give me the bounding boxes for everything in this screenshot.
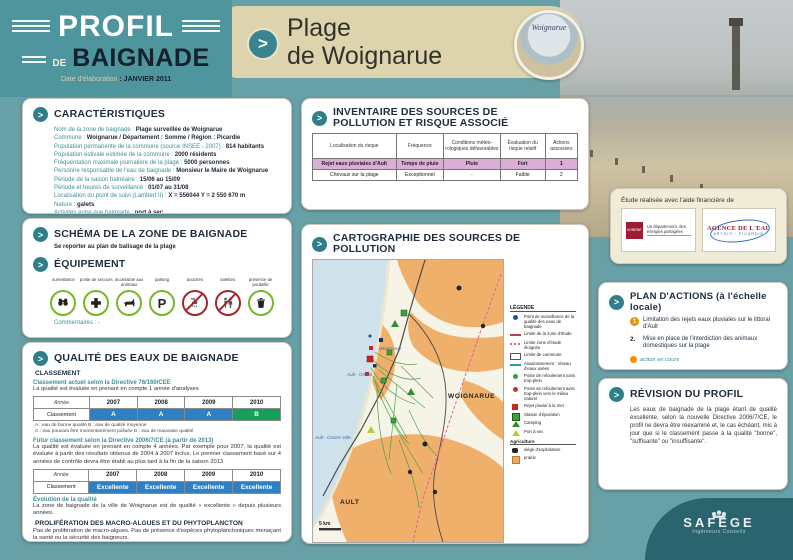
evolution-text: La zone de baignade de la ville de Woign… xyxy=(33,503,281,517)
legend-title: LÉGENDE xyxy=(510,305,576,312)
table-value-row: Classement A A A B xyxy=(34,409,281,421)
proliferation-heading: PROLIFÉRATION DES MACRO-ALGUES ET DU PHY… xyxy=(33,520,281,527)
classement-heading: CLASSEMENT xyxy=(33,370,281,377)
caracteristique-line: Commune : Woignarue / Département : Somm… xyxy=(33,134,281,142)
legend-symbol xyxy=(510,332,521,338)
equipement-toilettes: toilettes xyxy=(211,278,244,316)
actions-list: 1 Limitation des rejets eaux pluviales s… xyxy=(609,317,777,350)
caracteristique-line: Population permanente de la commune (sou… xyxy=(33,143,281,151)
in-progress-dot-icon xyxy=(630,356,637,363)
legend-symbol xyxy=(510,413,521,419)
legend-symbol xyxy=(510,315,521,321)
legend-item: Point de surveillance de la qualité des … xyxy=(510,315,576,330)
caracteristique-line: Population estivale estimée de la commun… xyxy=(33,151,281,159)
somme-logo-icon: somme xyxy=(626,222,643,239)
legend-symbol xyxy=(510,374,521,380)
agence-eau-swoosh-icon xyxy=(709,216,771,245)
legend-symbol xyxy=(510,362,521,368)
legend-symbol xyxy=(510,353,521,359)
trash-bin-icon xyxy=(248,290,274,316)
caracteristique-line: Fréquentation maximale journalière de la… xyxy=(33,159,281,167)
equipement-surveillance: surveillance xyxy=(47,278,80,316)
legend-symbol xyxy=(510,341,521,347)
table-value-row: Classement Excellente Excellente Excelle… xyxy=(34,481,281,493)
equipement-parking: parking P xyxy=(146,278,179,316)
legend-item: siège d'exploitation xyxy=(510,448,576,454)
map-image: Woignarue Ault - Onival WOIGNARUE Ault -… xyxy=(312,259,504,543)
table-header-row: Année 2007 2008 2009 2010 xyxy=(34,397,281,409)
chevron-right-icon: > xyxy=(247,28,279,60)
classement-note: C : eau pouvant être momentanément pollu… xyxy=(33,429,281,435)
legend-item: Station d'épuration xyxy=(510,413,576,419)
legend-item: prairie xyxy=(510,456,576,462)
first-aid-cross-icon xyxy=(83,290,109,316)
parking-icon: P xyxy=(149,290,175,316)
commune-badge: Woignarue xyxy=(514,10,584,80)
legend-symbol xyxy=(510,430,521,436)
map-label-woignarue-town: Woignarue xyxy=(379,346,402,351)
groyne-post xyxy=(615,158,618,165)
caracteristique-line: Activités autre que baignade : port à se… xyxy=(33,209,281,214)
future-directive-text: La qualité est évaluée en prenant en com… xyxy=(33,444,281,466)
funding-card: Étude réalisée avec l'aide financière de… xyxy=(610,188,787,264)
equipement-douches: douches xyxy=(178,278,211,316)
caracteristique-line: Localisation du point de suivi (Lambert … xyxy=(33,192,281,200)
decorative-lines xyxy=(182,20,220,35)
chevron-right-icon: > xyxy=(33,227,48,242)
page-title: Plage de Woignarue xyxy=(287,14,442,70)
cartographie-card: > CARTOGRAPHIE DES SOURCES DE POLLUTION xyxy=(301,224,589,544)
legend-list: Point de surveillance de la qualité des … xyxy=(510,315,576,436)
legend-agri-list: siège d'exploitation prairie xyxy=(510,448,576,463)
legend-symbol xyxy=(510,387,521,393)
table-header-row: Année 2007 2008 2009 2010 xyxy=(34,469,281,481)
equipement-comments: Commentaires : - xyxy=(33,320,281,326)
classement-table-current: Année 2007 2008 2009 2010 Classement A A… xyxy=(33,396,281,421)
revision-card: > RÉVISION DU PROFIL Les eaux de baignad… xyxy=(598,378,788,490)
legend-item: Poste de refoulement avec trop-plein ver… xyxy=(510,387,576,402)
legend-item: Limite de la zone d'étude xyxy=(510,332,576,338)
equipement-poubelle: présence de poubelle xyxy=(244,278,277,316)
schema-note: Se reporter au plan de balisage de la pl… xyxy=(33,244,281,250)
table-row: Chevaux sur la plage Exceptionnel - Faib… xyxy=(313,170,578,181)
section-title: CARACTÉRISTIQUES xyxy=(54,109,165,120)
chevron-right-icon: > xyxy=(33,351,48,366)
dog-icon xyxy=(116,290,142,316)
toilets-icon xyxy=(215,290,241,316)
table-header-row: Localisation du risque Fréquence Conditi… xyxy=(313,134,578,159)
plan-actions-card: > PLAN D'ACTIONS (à l'échelle locale) 1 … xyxy=(598,282,788,370)
section-title: INVENTAIRE DES SOURCES DE POLLUTION ET R… xyxy=(333,107,563,129)
chevron-right-icon: > xyxy=(609,295,624,310)
caracteristique-line: Personne responsable de l'eau de baignad… xyxy=(33,167,281,175)
legend-item: Poste de refoulement sans trop-plein xyxy=(510,374,576,384)
qualite-card: > QUALITÉ DES EAUX DE BAIGNADE CLASSEMEN… xyxy=(22,342,292,542)
safege-logo: SAFEGE Ingénieurs Conseils xyxy=(645,498,793,560)
elaboration-date: Date d'élaboration : JANVIER 2011 xyxy=(0,76,232,83)
caracteristique-line: Nom de la zone de baignade : Plage surve… xyxy=(33,126,281,134)
decorative-lines xyxy=(22,56,46,66)
inventaire-table: Localisation du risque Fréquence Conditi… xyxy=(312,133,578,181)
action-item: 1 Limitation des rejets eaux pluviales s… xyxy=(630,317,777,332)
caracteristique-line: Nature : galets xyxy=(33,201,281,209)
legend-item: Port à sec xyxy=(510,430,576,436)
inventaire-card: > INVENTAIRE DES SOURCES DE POLLUTION ET… xyxy=(301,98,589,210)
classement-table-future: Année 2007 2008 2009 2010 Classement Exc… xyxy=(33,469,281,494)
section-title: QUALITÉ DES EAUX DE BAIGNADE xyxy=(54,353,239,364)
section-title: CARTOGRAPHIE DES SOURCES DE POLLUTION xyxy=(333,233,578,255)
groyne-post xyxy=(590,150,593,157)
schema-equipement-card: > SCHÉMA DE LA ZONE DE BAIGNADE Se repor… xyxy=(22,218,292,338)
caracteristique-line: Période et heures de surveillance : 01/0… xyxy=(33,184,281,192)
current-directive-note: La qualité est évaluée en prenant en com… xyxy=(33,386,281,393)
legend-item: Camping xyxy=(510,421,576,427)
badge-caption: Woignarue xyxy=(517,23,581,32)
revision-text: Les eaux de baignade de la plage étant d… xyxy=(609,406,777,446)
profil-baignade-logo: PROFIL DE BAIGNADE Date d'élaboration : … xyxy=(0,0,232,97)
map-label-ault-centre: Ault - Centre-Ville xyxy=(314,435,351,440)
lighthouse-silhouette xyxy=(732,26,740,90)
caracteristiques-card: > CARACTÉRISTIQUES Nom de la zone de bai… xyxy=(22,98,292,214)
groyne-post xyxy=(642,166,645,173)
funding-title: Étude réalisée avec l'aide financière de xyxy=(621,197,776,204)
binoculars-icon xyxy=(50,290,76,316)
chevron-right-icon: > xyxy=(33,257,48,272)
map-scale-label: 5 km xyxy=(319,521,331,527)
legend-agriculture-heading: Agriculture xyxy=(510,439,576,445)
legend-symbol xyxy=(510,421,521,427)
logo-profil-text: PROFIL xyxy=(58,10,174,44)
caracteristique-line: Période de la saison balnéaire : 15/06 a… xyxy=(33,176,281,184)
legend-item: Rejet pluvial à la mer xyxy=(510,404,576,410)
map-label-ault-onival: Ault - Onival xyxy=(346,372,373,377)
map-label-woignarue-commune: WOIGNARUE xyxy=(448,393,495,400)
legend-symbol xyxy=(510,456,521,462)
action-number: 2. xyxy=(630,336,639,351)
section-title: ÉQUIPEMENT xyxy=(54,259,125,270)
map-legend: LÉGENDE Point de surveillance de la qual… xyxy=(510,305,576,465)
action-number: 1 xyxy=(630,317,639,326)
legend-item: Limite de commune xyxy=(510,353,576,359)
action-in-progress-note: action en cours xyxy=(630,356,777,363)
caracteristiques-list: Nom de la zone de baignade : Plage surve… xyxy=(33,126,281,214)
agence-eau-logo: AGENCE DE L'EAU ARTOIS · PICARDIE xyxy=(702,208,777,252)
proliferation-text: Pas de prolifération de macro-algues. Pa… xyxy=(33,528,281,542)
action-item: 2. Mise en place de l'interdiction des a… xyxy=(630,336,777,351)
equipement-icons: surveillance poste de secours accessible… xyxy=(33,276,281,316)
equipement-secours: poste de secours xyxy=(80,278,113,316)
shower-icon xyxy=(182,290,208,316)
photo-horizon xyxy=(560,95,793,97)
chevron-right-icon: > xyxy=(609,387,624,402)
table-row: Rejet eaux pluviales d'Ault Temps de plu… xyxy=(313,159,578,170)
groyne-post xyxy=(670,175,673,182)
chevron-right-icon: > xyxy=(312,111,327,126)
logo-de-text: DE xyxy=(52,58,66,69)
section-title: PLAN D'ACTIONS (à l'échelle locale) xyxy=(630,291,777,313)
equipement-animaux: accessible aux animaux xyxy=(113,278,146,316)
somme-department-logo: somme Un département, des énergies parta… xyxy=(621,208,696,252)
section-title: RÉVISION DU PROFIL xyxy=(630,389,743,400)
logo-baignade-text: BAIGNADE xyxy=(72,44,209,73)
chevron-right-icon: > xyxy=(33,107,48,122)
legend-symbol xyxy=(510,404,521,410)
decorative-lines xyxy=(12,20,50,35)
legend-symbol xyxy=(510,448,521,454)
legend-item: Assainissement : réseau d'eaux usées xyxy=(510,362,576,372)
chevron-right-icon: > xyxy=(312,237,327,252)
legend-item: Limite zone d'étude éloignée xyxy=(510,341,576,351)
map-label-ault-commune: AULT xyxy=(340,499,360,506)
section-title: SCHÉMA DE LA ZONE DE BAIGNADE xyxy=(54,229,247,240)
